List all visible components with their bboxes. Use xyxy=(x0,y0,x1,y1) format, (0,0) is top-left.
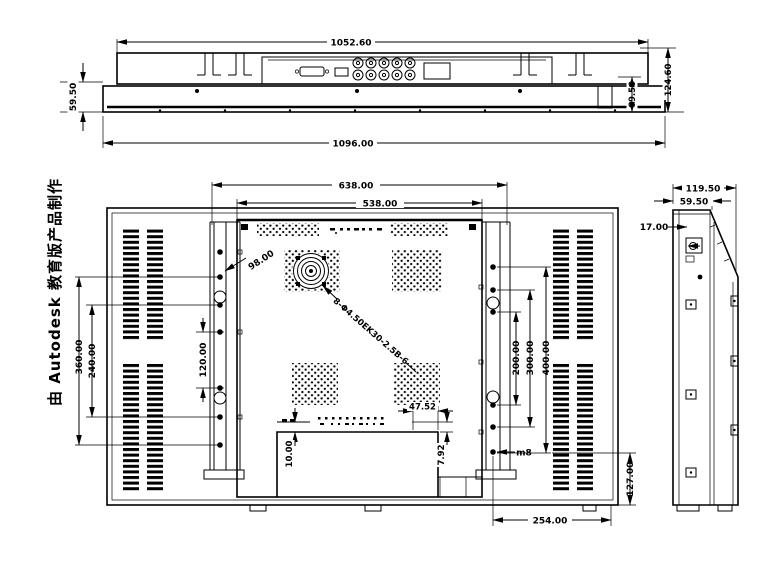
dim-638-label: 638.00 xyxy=(339,182,374,192)
top-height-right-outer-dimension: 124.60 xyxy=(640,48,676,112)
dim-1096-label: 1096.00 xyxy=(333,140,374,150)
right-bracket xyxy=(476,222,516,479)
dim-59-50-side-label: 59.50 xyxy=(680,198,708,208)
dim-127-label: 127.00 xyxy=(626,462,636,497)
dim-98-label: 98.00 xyxy=(247,249,276,273)
m8-label: m8 xyxy=(516,449,532,459)
hole-pattern-callout: 8-Φ4.50EK30-2.5B-6 xyxy=(323,286,416,372)
strip-offset-dimension: 10.00 xyxy=(284,408,296,468)
bracket-offset-dimension: 17.00 xyxy=(640,223,687,233)
top-width-outer-dimension: 1096.00 xyxy=(103,116,665,150)
panel-width-dimension: 538.00 xyxy=(237,198,482,220)
rca-jacks-icon xyxy=(353,58,415,80)
side-view: 119.50 59.50 17.00 xyxy=(640,183,738,511)
dim-200-label: 200.00 xyxy=(512,341,522,376)
hole-offset-callout: 98.00 xyxy=(225,249,276,273)
side-outline xyxy=(673,210,738,511)
fan-icon xyxy=(292,252,330,290)
dim-59-50-top-label: 59.50 xyxy=(69,83,79,111)
dim-240-label: 240.00 xyxy=(88,344,98,379)
dim-400-label: 400.00 xyxy=(542,341,552,376)
dim-69-50-label: 69.50 xyxy=(628,81,638,108)
bottom-width-dimension: 254.00 xyxy=(493,456,611,527)
dim-47-52-label: 47.52 xyxy=(409,403,436,413)
dim-538-label: 538.00 xyxy=(363,200,398,210)
dim-10-label: 10.00 xyxy=(285,440,295,467)
front-view: 638.00 538.00 360.00 240.00 120.00 xyxy=(74,180,637,527)
mesh-patch-bottom-left xyxy=(292,363,338,405)
left-bracket xyxy=(204,222,244,479)
depth-front-dimension: 59.50 xyxy=(654,196,731,210)
top-view: 1052.60 1096.00 59.50 69.50 124.60 xyxy=(60,37,684,150)
top-strip-marks xyxy=(330,228,382,234)
terminal-recess xyxy=(277,432,438,497)
drawing-canvas: 由 Autodesk 教育版产品制作 xyxy=(0,0,759,580)
dim-254-label: 254.00 xyxy=(533,517,568,527)
top-connector-panel xyxy=(262,57,552,84)
control-strip xyxy=(277,417,384,425)
dim-360-label: 360.00 xyxy=(75,340,85,375)
dim-120-label: 120.00 xyxy=(199,343,209,378)
side-bracket-details xyxy=(686,238,738,477)
top-height-left-dimension: 59.50 xyxy=(60,63,103,131)
mesh-patch-top-right xyxy=(392,250,442,292)
hole-callout-label: 8-Φ4.50EK30-2.5B-6 xyxy=(331,296,410,367)
dim-7-92-label: 7.92 xyxy=(437,444,447,465)
bolt-callout: m8 xyxy=(497,449,532,459)
dim-17-label: 17.00 xyxy=(640,223,668,233)
dim-119-50-label: 119.50 xyxy=(686,185,721,195)
dvi-connector-icon xyxy=(335,68,348,76)
power-inlet-icon xyxy=(424,63,450,79)
vga-connector-icon xyxy=(295,67,328,76)
watermark-text: 由 Autodesk 教育版产品制作 xyxy=(46,178,64,406)
autodesk-watermark: 由 Autodesk 教育版产品制作 xyxy=(46,178,64,406)
mesh-patch-bottom-right xyxy=(394,363,440,405)
dim-124-60-label: 124.60 xyxy=(664,64,674,97)
dim-300-label: 300.00 xyxy=(526,341,536,376)
dim-1052-label: 1052.60 xyxy=(331,39,372,49)
recess-edge-dimension: 7.92 xyxy=(412,409,453,467)
recess-width-dimension: 47.52 xyxy=(398,402,453,430)
speaker-grille xyxy=(438,477,482,497)
